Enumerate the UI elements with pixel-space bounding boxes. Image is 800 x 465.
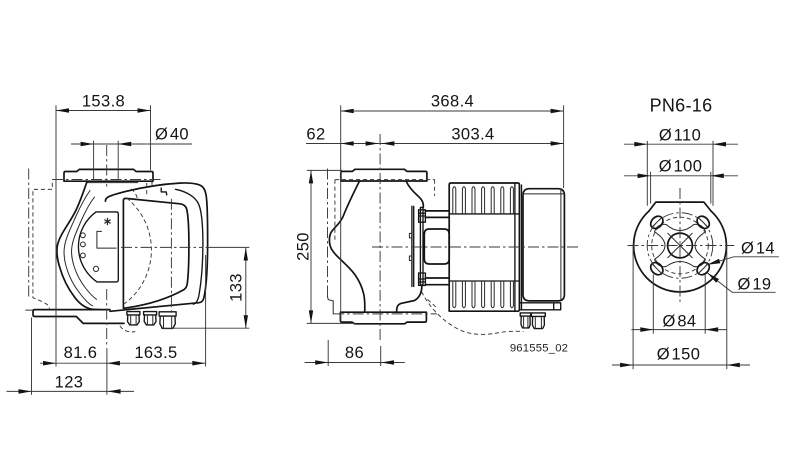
svg-text:Ø40: Ø40 xyxy=(155,126,189,144)
svg-text:961555_02: 961555_02 xyxy=(510,343,568,355)
svg-text:303.4: 303.4 xyxy=(451,126,494,144)
svg-text:133: 133 xyxy=(228,273,246,302)
svg-text:62: 62 xyxy=(306,126,325,144)
svg-text:250: 250 xyxy=(295,232,313,261)
svg-text:Ø84: Ø84 xyxy=(663,313,697,331)
svg-text:86: 86 xyxy=(345,344,364,362)
svg-text:368.4: 368.4 xyxy=(431,93,474,111)
svg-text:Ø100: Ø100 xyxy=(659,158,703,176)
svg-text:123: 123 xyxy=(55,374,84,392)
svg-text:81.6: 81.6 xyxy=(64,344,98,362)
svg-text:Ø150: Ø150 xyxy=(657,346,701,364)
svg-text:153.8: 153.8 xyxy=(82,93,125,111)
svg-text:163.5: 163.5 xyxy=(134,344,177,362)
svg-text:Ø19: Ø19 xyxy=(738,276,772,294)
svg-text:PN6-16: PN6-16 xyxy=(650,96,713,116)
svg-text:Ø110: Ø110 xyxy=(659,127,701,145)
svg-text:Ø14: Ø14 xyxy=(741,240,775,258)
